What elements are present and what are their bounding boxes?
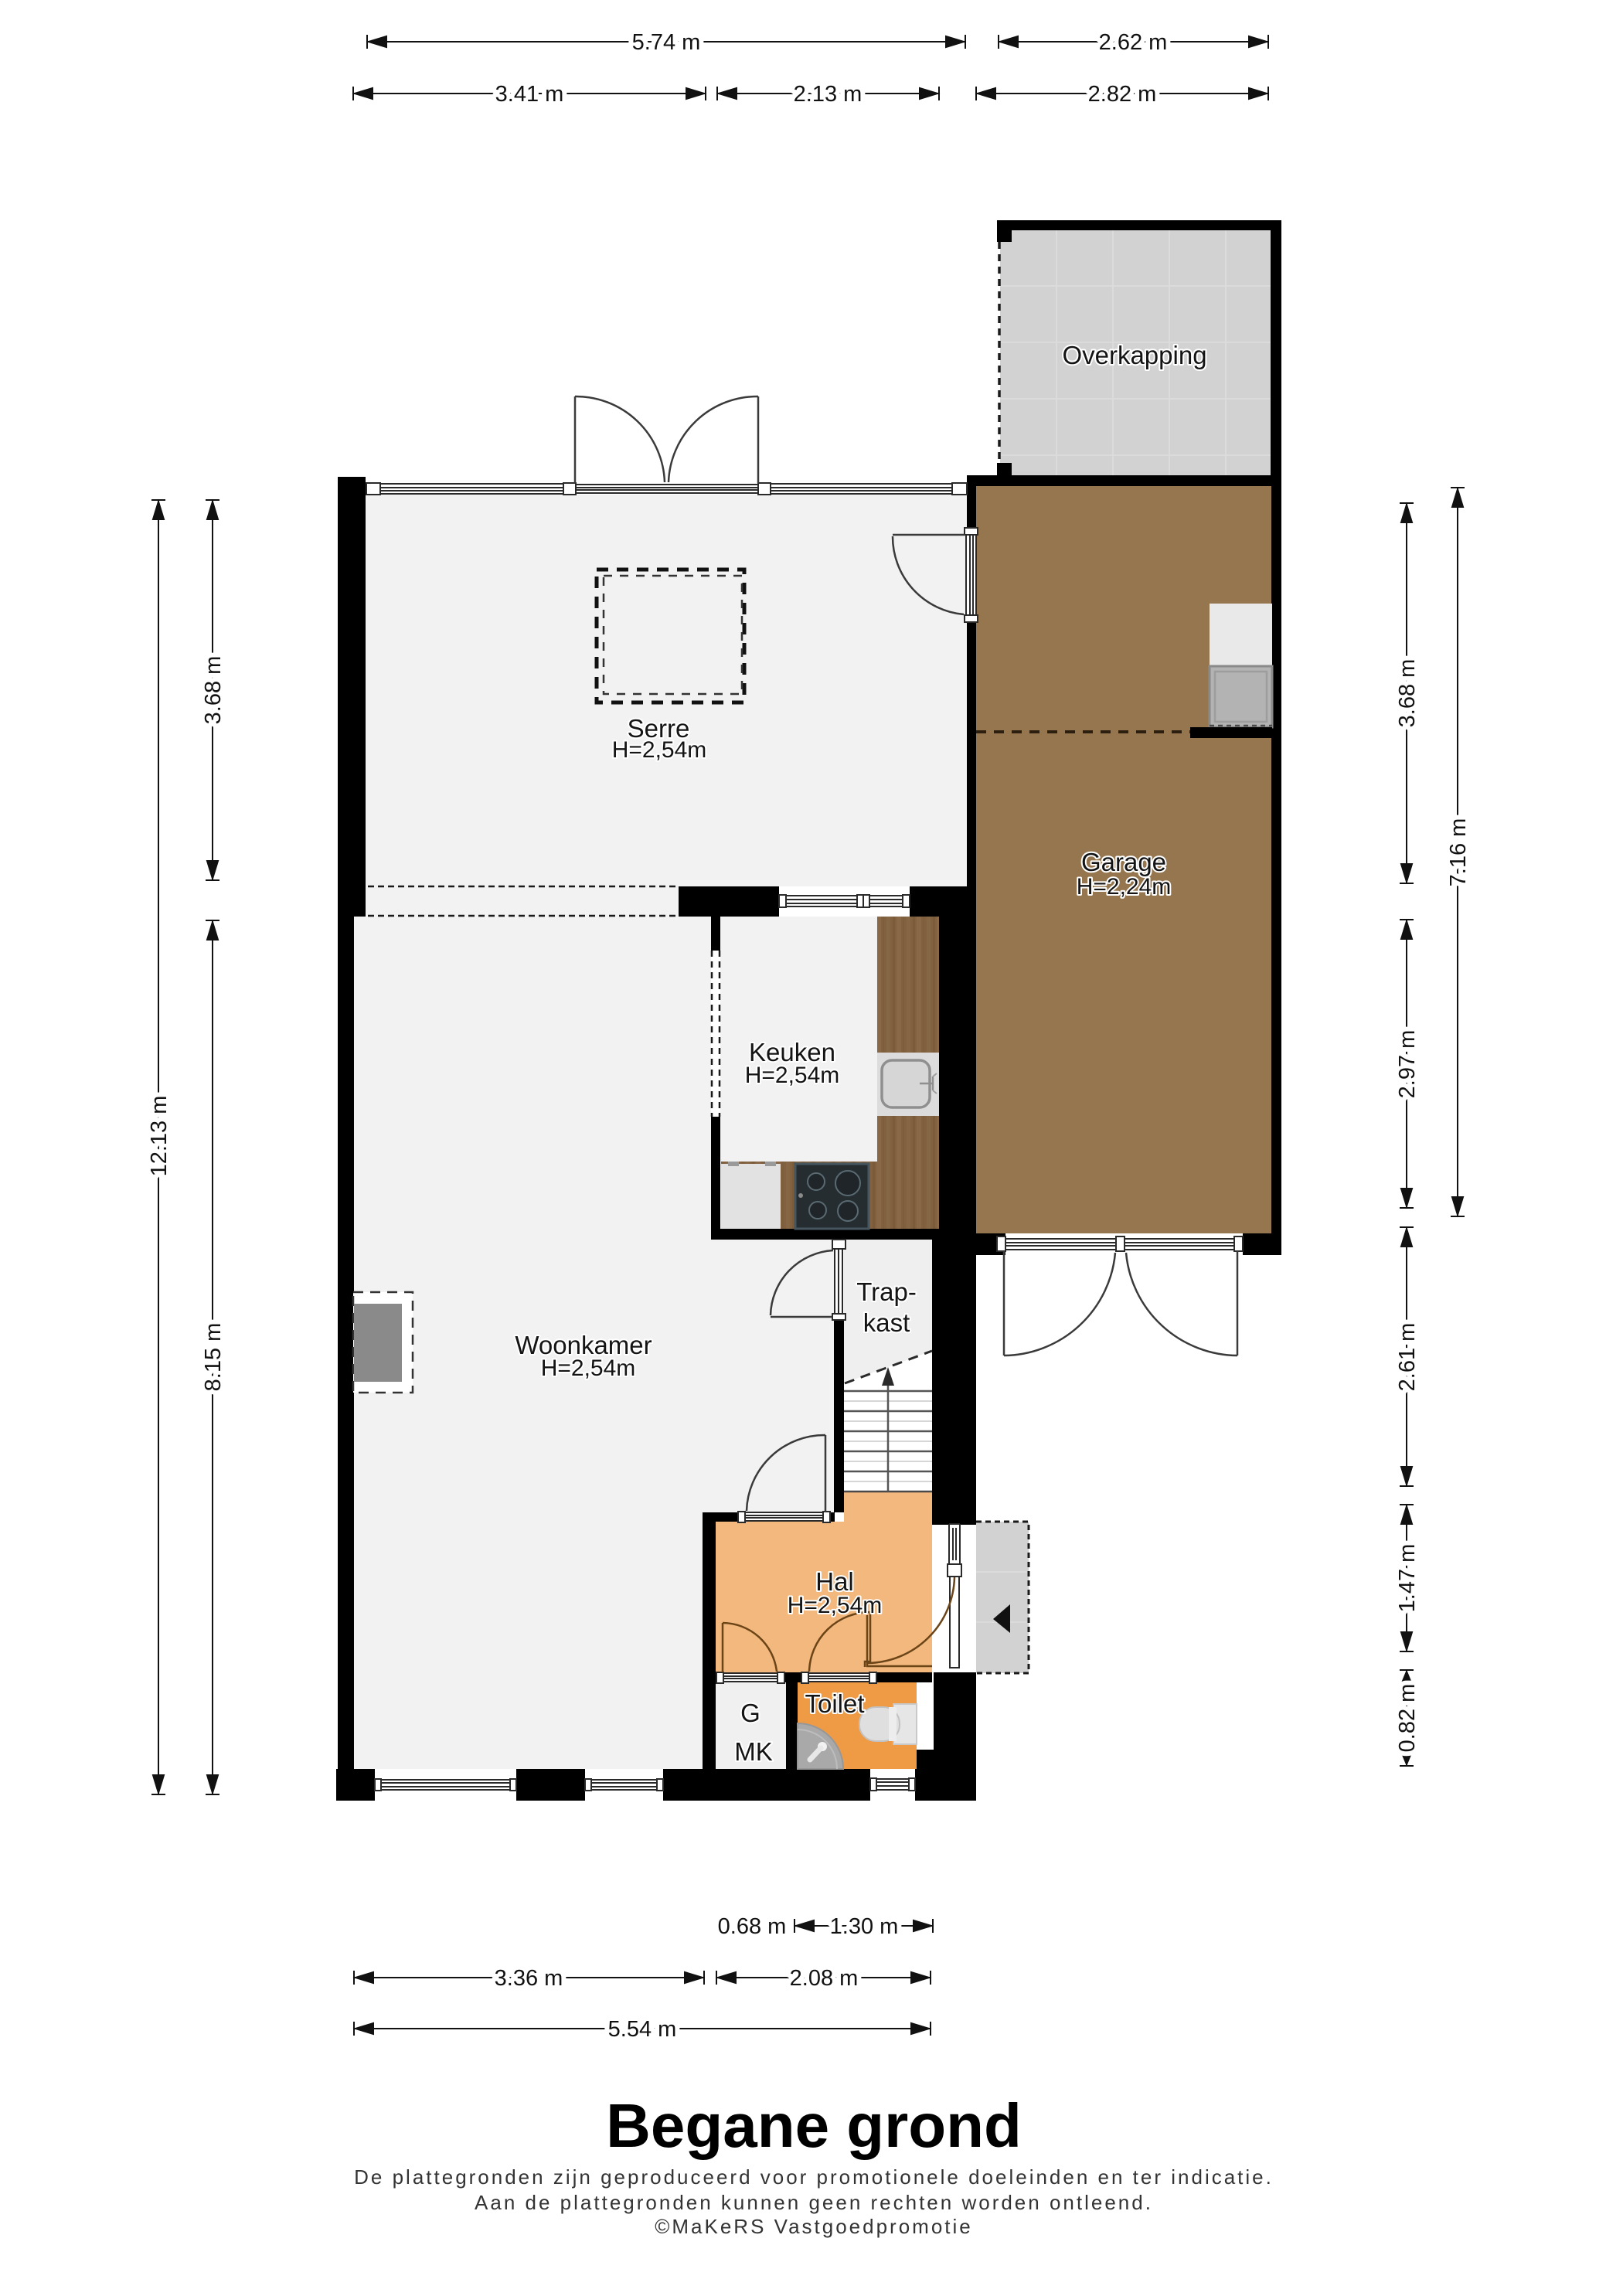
svg-text:Hal: Hal (815, 1567, 854, 1596)
svg-text:2.97 m: 2.97 m (1395, 1030, 1420, 1099)
svg-text:2.61 m: 2.61 m (1395, 1323, 1420, 1392)
svg-text:©MaKeRS Vastgoedpromotie: ©MaKeRS Vastgoedpromotie (655, 2215, 973, 2238)
svg-text:Toilet: Toilet (805, 1689, 864, 1718)
svg-text:G: G (740, 1699, 760, 1727)
svg-text:5.54 m: 5.54 m (608, 2017, 677, 2042)
svg-text:0.82 m: 0.82 m (1395, 1684, 1420, 1753)
svg-text:12.13 m: 12.13 m (147, 1096, 172, 1177)
svg-text:Trap-: Trap- (856, 1277, 917, 1306)
svg-text:7.16 m: 7.16 m (1446, 818, 1471, 887)
svg-text:Aan de plattegronden kunnen ge: Aan de plattegronden kunnen geen rechten… (475, 2191, 1153, 2214)
svg-text:MK: MK (734, 1737, 773, 1766)
svg-text:2.62 m: 2.62 m (1099, 30, 1168, 55)
svg-text:2.13 m: 2.13 m (794, 82, 863, 107)
svg-text:H=2,54m: H=2,54m (612, 737, 707, 763)
svg-text:1.47 m: 1.47 m (1395, 1544, 1420, 1613)
svg-text:3.41 m: 3.41 m (495, 82, 564, 107)
svg-text:H=2,54m: H=2,54m (788, 1593, 883, 1618)
svg-text:5.74 m: 5.74 m (632, 30, 701, 55)
svg-text:3.68 m: 3.68 m (201, 656, 226, 725)
svg-text:2.82 m: 2.82 m (1088, 82, 1157, 107)
svg-text:Overkapping: Overkapping (1062, 341, 1206, 369)
svg-text:3.36 m: 3.36 m (495, 1966, 563, 1991)
svg-text:kast: kast (863, 1308, 910, 1337)
svg-text:Garage: Garage (1081, 848, 1166, 876)
svg-text:De plattegronden zijn geproduc: De plattegronden zijn geproduceerd voor … (354, 2165, 1274, 2189)
svg-text:H=2,54m: H=2,54m (541, 1355, 636, 1381)
svg-text:Begane grond: Begane grond (606, 2091, 1022, 2160)
svg-text:2.08 m: 2.08 m (790, 1966, 859, 1991)
svg-text:8.15 m: 8.15 m (201, 1323, 226, 1392)
svg-text:H=2,54m: H=2,54m (745, 1063, 840, 1088)
svg-text:3.68 m: 3.68 m (1395, 659, 1420, 728)
svg-text:1.30 m: 1.30 m (830, 1914, 899, 1939)
svg-text:H=2,24m: H=2,24m (1077, 874, 1172, 900)
svg-text:0.68 m: 0.68 m (718, 1914, 787, 1939)
